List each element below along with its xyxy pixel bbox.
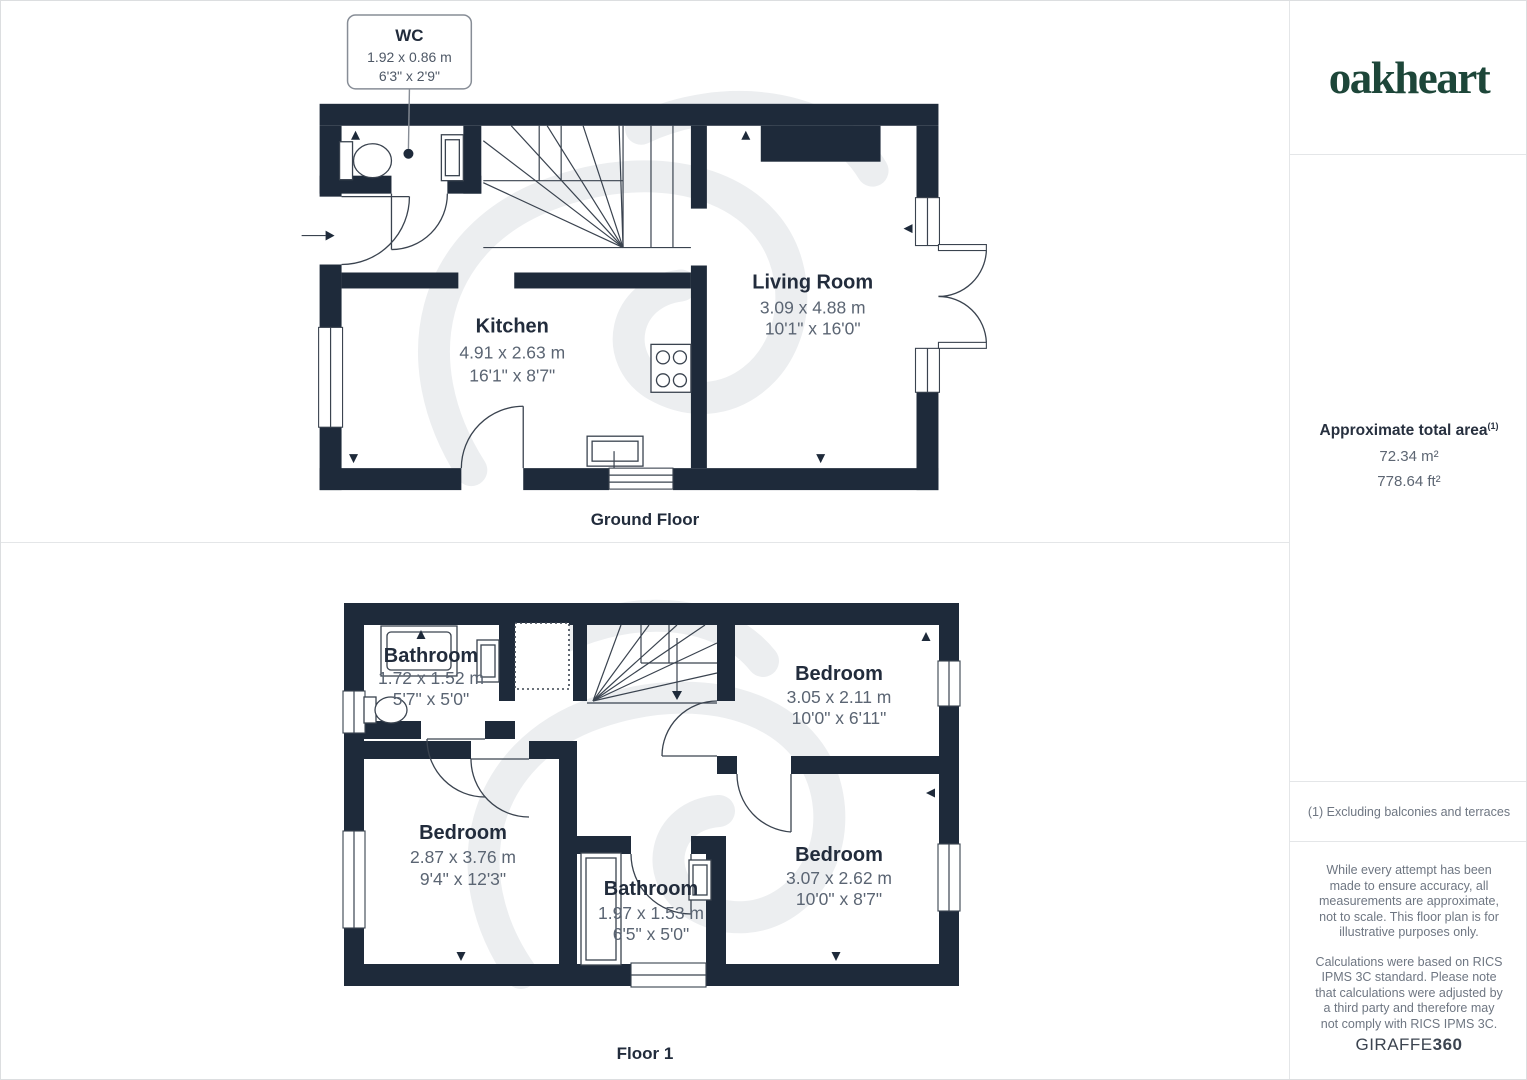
room-label-bedroom-left: Bedroom 2.87 x 3.76 m 9'4" x 12'3" — [410, 822, 516, 889]
giraffe-brand-name: GIRAFFE — [1355, 1035, 1432, 1054]
area-title: Approximate total area(1) — [1290, 421, 1527, 440]
room-label-bedroom-top-right: Bedroom 3.05 x 2.11 m 10'0" x 6'11" — [787, 663, 892, 728]
room-label-bedroom-bottom-right: Bedroom 3.07 x 2.62 m 10'0" x 8'7" — [786, 844, 892, 909]
outside-steps — [609, 468, 673, 489]
area-title-text: Approximate total area — [1320, 422, 1488, 439]
room-name: Kitchen — [476, 315, 549, 337]
area-m2: 72.34 m² — [1290, 448, 1527, 465]
area-ft2: 778.64 ft² — [1290, 473, 1527, 490]
ground-floor-plan: WC 1.92 x 0.86 m 6'3" x 2'9" Kitchen 4.9… — [1, 1, 1289, 542]
callout-dim-imperial: 6'3" x 2'9" — [379, 68, 440, 84]
room-dim-imperial: 6'5" x 5'0" — [613, 924, 690, 944]
callout-room-name: WC — [395, 26, 423, 45]
area-section: Approximate total area(1) 72.34 m² 778.6… — [1290, 155, 1527, 782]
room-name: Bathroom — [384, 645, 478, 667]
disclaimer-paragraph-1: While every attempt has been made to ens… — [1315, 863, 1503, 941]
room-name: Living Room — [752, 271, 873, 293]
room-dim-metric: 3.05 x 2.11 m — [787, 687, 892, 707]
room-dim-imperial: 10'1" x 16'0" — [765, 318, 861, 338]
room-name: Bathroom — [604, 878, 698, 900]
floor-1-panel: Bathroom 1.72 x 1.52 m 5'7" x 5'0" Bedro… — [1, 543, 1289, 1080]
floorplan-page: WC 1.92 x 0.86 m 6'3" x 2'9" Kitchen 4.9… — [0, 0, 1527, 1080]
floor-1-plan: Bathroom 1.72 x 1.52 m 5'7" x 5'0" Bedro… — [1, 543, 1289, 1080]
room-dim-metric: 4.91 x 2.63 m — [459, 342, 565, 362]
room-dim-metric: 1.97 x 1.53 m — [598, 903, 704, 923]
floor-1-label: Floor 1 — [1, 1044, 1289, 1064]
room-dim-imperial: 5'7" x 5'0" — [393, 689, 470, 709]
room-label-bathroom-bottom: Bathroom 1.97 x 1.53 m 6'5" x 5'0" — [598, 878, 704, 944]
footnote: (1) Excluding balconies and terraces — [1290, 782, 1527, 842]
ground-floor-label: Ground Floor — [1, 510, 1289, 530]
room-label-kitchen: Kitchen 4.91 x 2.63 m 16'1" x 8'7" — [459, 315, 565, 385]
room-dim-imperial: 16'1" x 8'7" — [469, 365, 555, 385]
room-dim-imperial: 9'4" x 12'3" — [420, 869, 506, 889]
room-dim-imperial: 10'0" x 8'7" — [796, 889, 882, 909]
info-sidebar: oakheart Approximate total area(1) 72.34… — [1289, 1, 1527, 1079]
stove-fixture — [651, 344, 691, 392]
ground-floor-panel: WC 1.92 x 0.86 m 6'3" x 2'9" Kitchen 4.9… — [1, 1, 1289, 543]
room-label-bathroom-top: Bathroom 1.72 x 1.52 m 5'7" x 5'0" — [378, 645, 484, 709]
entry-arrow — [302, 231, 335, 241]
cupboard-fixture — [515, 623, 569, 689]
room-dim-metric: 3.07 x 2.62 m — [786, 868, 892, 888]
disclaimer-section: While every attempt has been made to ens… — [1290, 842, 1527, 1079]
room-name: Bedroom — [419, 822, 507, 844]
giraffe360-brand: GIRAFFE360 — [1290, 1037, 1527, 1053]
sink-fixture — [441, 135, 463, 181]
logo-section: oakheart — [1290, 1, 1527, 155]
oakheart-logo: oakheart — [1329, 52, 1490, 104]
room-dim-metric: 3.09 x 4.88 m — [760, 297, 866, 317]
giraffe-brand-number: 360 — [1433, 1035, 1463, 1054]
toilet-fixture — [340, 142, 392, 180]
room-dim-metric: 1.72 x 1.52 m — [378, 668, 484, 688]
area-title-superscript: (1) — [1487, 421, 1498, 431]
room-name: Bedroom — [795, 844, 883, 866]
disclaimer-paragraph-2: Calculations were based on RICS IPMS 3C … — [1315, 955, 1503, 1033]
room-dim-imperial: 10'0" x 6'11" — [792, 708, 887, 728]
room-label-living-room: Living Room 3.09 x 4.88 m 10'1" x 16'0" — [752, 271, 873, 338]
room-name: Bedroom — [795, 663, 883, 685]
callout-dim-metric: 1.92 x 0.86 m — [367, 49, 452, 65]
room-dim-metric: 2.87 x 3.76 m — [410, 847, 516, 867]
kitchen-sink-fixture — [587, 436, 643, 468]
